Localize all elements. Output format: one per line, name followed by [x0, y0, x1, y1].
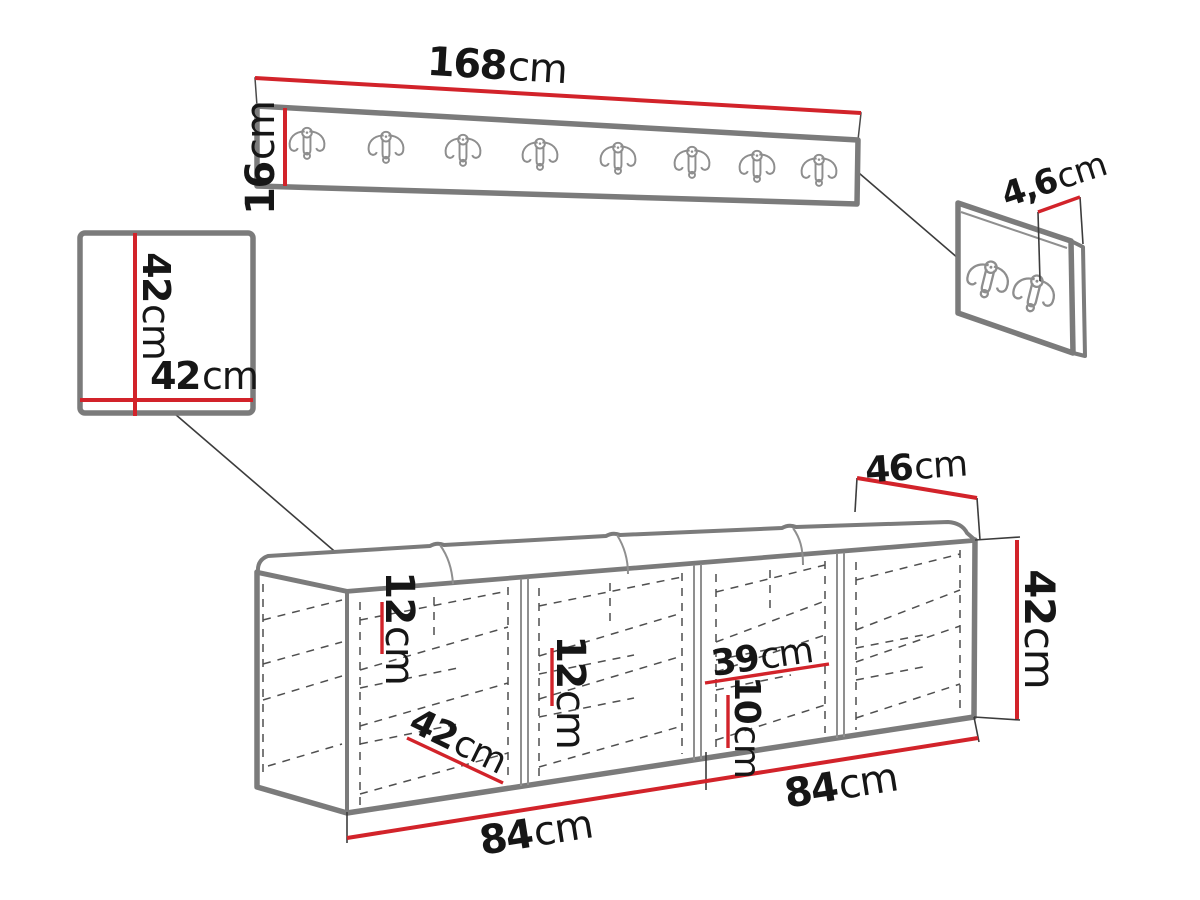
witness-line-height-bottom — [974, 717, 1020, 720]
dim-label-bench-height: 42cm — [1016, 569, 1065, 688]
diagram-page: 168cm 16cm 42cm 42cm 4,6cm 46cm 42cm 12c… — [0, 0, 1200, 900]
witness-line-height-top — [975, 537, 1020, 540]
dim-label-panel-width: 42cm — [150, 354, 258, 398]
hook-panel-front — [958, 203, 1073, 353]
leader-line-rack-to-hook-panel — [845, 161, 959, 259]
dim-label-shelf-gap-2: 12cm — [547, 635, 593, 749]
witness-line-depth-right — [977, 498, 980, 540]
dim-label-bench-width-left: 84cm — [476, 801, 595, 864]
furniture-dimension-diagram: 168cm 16cm 42cm 42cm 4,6cm 46cm 42cm 12c… — [0, 0, 1200, 900]
dim-label-rack-height: 16cm — [238, 101, 284, 215]
dim-label-panel-height: 42cm — [134, 252, 178, 360]
dim-label-shelf-gap-1: 12cm — [376, 571, 422, 685]
hook-panel-side-edge — [1071, 241, 1085, 356]
coat-rack — [255, 78, 861, 204]
leader-line-panel-to-bench — [175, 414, 347, 562]
witness-line-thickness-right — [1080, 197, 1083, 244]
dim-label-rack-width: 168cm — [426, 39, 569, 93]
dim-label-bench-width-right: 84cm — [781, 754, 900, 817]
hook-panel — [958, 197, 1085, 356]
dim-label-bench-depth: 46cm — [864, 443, 969, 491]
dim-label-shelf-gap-3: 10cm — [727, 676, 768, 778]
witness-line-depth-left — [855, 478, 857, 512]
storage-bench — [257, 478, 1020, 843]
